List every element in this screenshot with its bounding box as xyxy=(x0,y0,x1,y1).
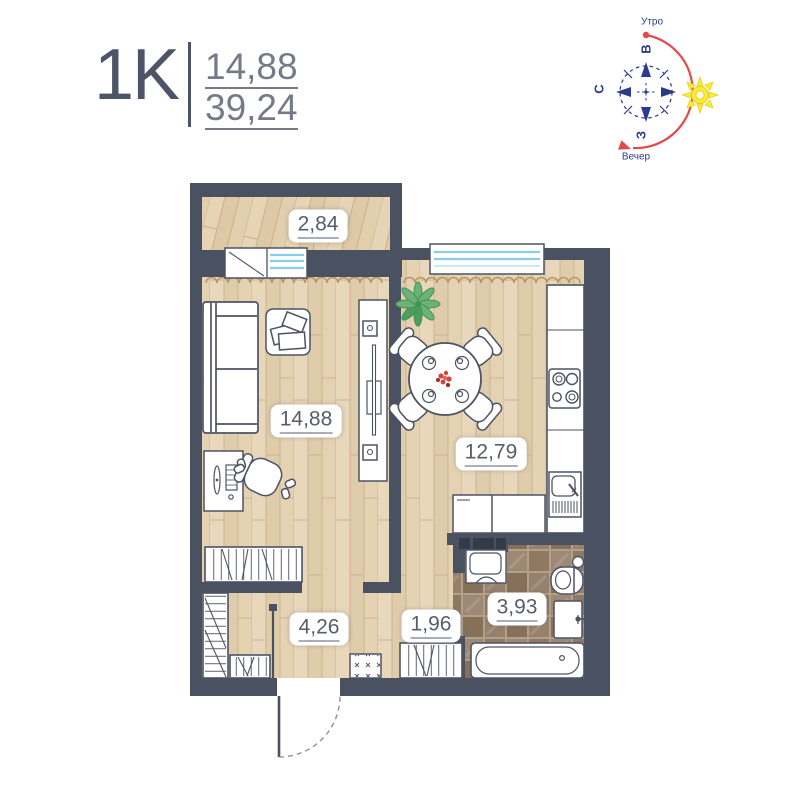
tv-unit xyxy=(359,300,387,481)
floorplan-page: 1K 14,88 39,24 2,84 14,88 12,79 4,26 1,9… xyxy=(0,0,800,800)
room-label-hallway: 4,26 xyxy=(290,613,349,646)
room-label-bathroom: 3,93 xyxy=(488,593,547,626)
apartment-type-label: 1K xyxy=(94,34,178,116)
header-divider xyxy=(188,42,191,127)
compass-west-label: З xyxy=(634,131,649,139)
dining-table xyxy=(409,343,481,415)
room-label-corridor: 1,96 xyxy=(402,610,461,643)
hob-icon xyxy=(549,369,580,408)
floor-drain-icon xyxy=(573,557,584,568)
plant-icon xyxy=(396,282,440,326)
sofa xyxy=(203,302,258,433)
coffee-table xyxy=(266,309,310,355)
entrance-door xyxy=(277,678,340,757)
balcony-window xyxy=(225,248,307,278)
total-area-value: 39,24 xyxy=(205,89,298,130)
room-label-kitchen: 12,79 xyxy=(456,438,527,471)
corridor-wardrobe xyxy=(400,643,462,678)
kitchen-sink-icon xyxy=(549,472,581,517)
kitchen-lower-counter xyxy=(453,495,545,533)
bathtub xyxy=(471,643,584,678)
living-area-value: 14,88 xyxy=(205,48,298,89)
hallway-small-wardrobe xyxy=(230,655,270,678)
room-label-balcony: 2,84 xyxy=(289,210,348,243)
bathroom-sink xyxy=(554,601,584,638)
room-label-living: 14,88 xyxy=(271,405,342,438)
living-wardrobe xyxy=(205,547,302,582)
compass-north-label: С xyxy=(592,84,607,93)
sun-icon xyxy=(682,77,718,113)
compass-morning-label: Утро xyxy=(641,17,663,28)
compass-rose xyxy=(616,62,676,122)
doormat xyxy=(350,654,381,678)
washing-machine xyxy=(466,550,506,583)
kitchen-window xyxy=(430,244,544,274)
floor-plan xyxy=(0,0,800,800)
compass-east-label: В xyxy=(639,44,654,53)
hallway-tall-wardrobe xyxy=(203,593,228,678)
compass-evening-label: Вечер xyxy=(622,152,650,163)
